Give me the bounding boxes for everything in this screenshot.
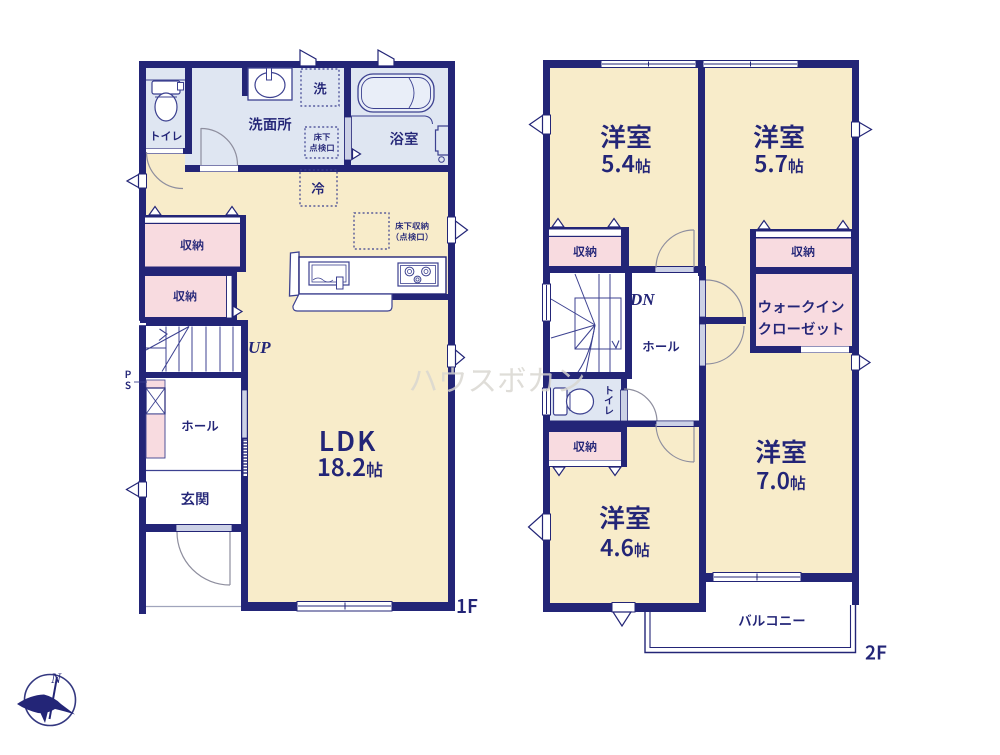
svg-text:N: N bbox=[50, 671, 62, 687]
svg-text:UP: UP bbox=[248, 338, 271, 357]
svg-text:DN: DN bbox=[629, 290, 655, 309]
